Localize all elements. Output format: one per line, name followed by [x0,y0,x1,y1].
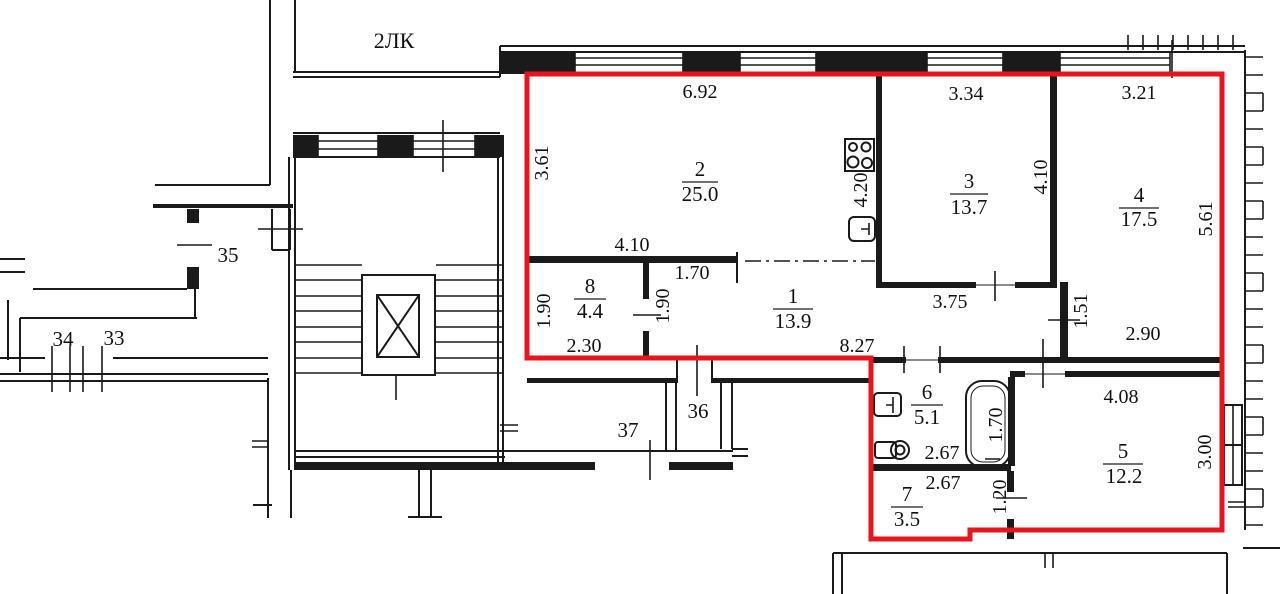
room-label-5: 5 12.2 [1103,439,1143,488]
dim-room8-width-top: 4.10 [615,234,650,256]
common-room-33-label: 33 [104,326,125,350]
dim-room2-depth: 3.61 [531,146,553,181]
common-room-35-label: 35 [218,243,239,267]
dim-hall-length: 8.27 [840,335,875,357]
dim-kitchen-zone: 4.20 [850,173,872,208]
dim-bath-length: 1.70 [985,408,1007,443]
toilet-icon [875,441,909,459]
room-number: 3 [964,169,975,193]
dim-hall-jog: 1.51 [1070,294,1092,329]
common-room-34-label: 34 [53,327,75,351]
dim-room5-depth: 3.00 [1194,435,1216,470]
washbasin-icon [874,393,901,416]
room-label-2: 2 25.0 [682,157,719,206]
room-number: 4 [1134,183,1145,207]
dim-room7-door: 1.20 [989,480,1011,515]
room-number: 7 [902,482,913,506]
dim-room3-depth: 4.10 [1030,160,1052,195]
room-label-7: 7 3.5 [891,482,923,531]
room-number: 1 [788,284,799,308]
room-number: 6 [922,380,933,404]
room-number: 5 [1118,439,1129,463]
dim-room3-bottom: 3.75 [933,291,968,313]
room-area: 13.7 [951,195,988,219]
room-area: 3.5 [894,507,920,531]
room-area: 4.4 [577,299,604,323]
common-room-36-label: 36 [688,399,709,423]
dim-room8-depth: 1.90 [533,294,555,329]
room-label-6: 6 5.1 [911,380,943,429]
dim-room7-width: 2.67 [926,472,961,494]
left-wing-walls [0,0,303,392]
labels: 2ЛК 6.92 3.34 3.21 4.10 1.70 2.30 8.27 3… [53,28,1218,531]
dim-room2-width: 6.92 [683,81,718,103]
dim-room6-width: 2.67 [925,442,960,464]
room-area: 25.0 [682,182,719,206]
elevator-icon [362,275,435,400]
room-label-1: 1 13.9 [773,284,813,333]
room-label-8: 8 4.4 [574,274,606,323]
room-number: 8 [585,274,596,298]
stove-icon [845,139,874,171]
dim-room4-bottom-width: 2.90 [1126,323,1161,345]
building-entrance-label: 2ЛК [374,28,415,53]
room-area: 5.1 [914,405,940,429]
dim-room4-depth: 5.61 [1195,202,1217,237]
kitchen-sink-icon [849,217,875,241]
dim-room3-width: 3.34 [949,83,984,105]
room-label-3: 3 13.7 [950,169,988,219]
room-number: 2 [695,157,706,181]
dim-room5-width: 4.08 [1104,386,1139,408]
dim-hall-niche: 1.70 [675,262,710,284]
common-room-37-label: 37 [618,418,639,442]
dim-room4-width: 3.21 [1122,82,1157,104]
lower-walls [833,548,1280,594]
room-area: 17.5 [1121,207,1158,231]
room5-balcony-window [1224,405,1246,507]
dim-room8-width-bottom: 2.30 [567,335,602,357]
room-label-4: 4 17.5 [1119,183,1159,231]
floor-plan-drawing: 2ЛК 6.92 3.34 3.21 4.10 1.70 2.30 8.27 3… [0,0,1280,594]
dim-room8-door: 1.90 [652,289,674,324]
room-area: 12.2 [1106,464,1143,488]
floor-plan: 2ЛК 6.92 3.34 3.21 4.10 1.70 2.30 8.27 3… [0,0,1280,594]
room-area: 13.9 [775,309,812,333]
